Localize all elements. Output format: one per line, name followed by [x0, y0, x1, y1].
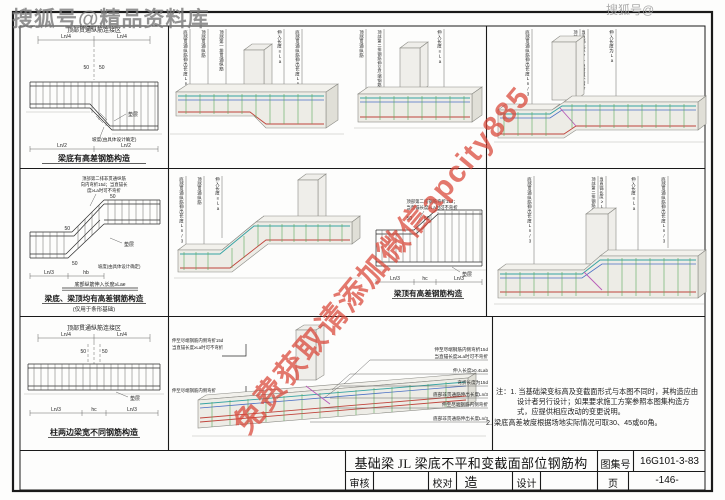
p2-cushion-leader: [110, 238, 122, 243]
notes-prefix: 注：: [496, 387, 510, 396]
v1-beam-front: [176, 92, 326, 128]
note-item-1: 注：1. 当基础梁变标高及变截面形式与本图不同时，其构造应由设计者另行设计；如果…: [496, 387, 702, 418]
p3-dim-ln3-right: Ln/3: [127, 407, 137, 413]
p2-dim-hb: hb: [83, 270, 89, 276]
p1-caption: 梁底有高差钢筋构造: [57, 153, 130, 163]
v5-beam-top-left: [498, 264, 592, 270]
v3-label-4: 伸入长度为La: [609, 29, 615, 64]
p3-dim-ln4-right: Ln/4: [117, 332, 127, 338]
panel-3d-width-change: 伸至尽端钢筋内侧弯折15d 当直锚长度≥La时可不弯折 伸至尽端钢筋内侧弯折 伸…: [172, 325, 488, 436]
v2-column-front: [400, 48, 420, 92]
p4-note-leader: [417, 211, 424, 223]
v3-column-side: [576, 36, 584, 100]
v1-beam-top: [176, 84, 338, 92]
v1-label-4: 伸入长度≥La: [277, 29, 283, 64]
p1-cushion-lines: [26, 112, 162, 134]
v3-label-1: 底部贯通纵筋伸出长度Ln/3: [525, 29, 531, 97]
p2-slope-note: 坡度(由具体设计确定): [98, 263, 141, 270]
p2-caption: 梁底、梁顶均有高差钢筋构造: [44, 293, 144, 303]
p3-cushion-label: 垫层: [130, 395, 140, 402]
p2-cushion-label: 垫层: [124, 241, 134, 248]
design-label: 设计: [513, 475, 540, 490]
panel-3d-bottom-step-a: 底部贯通纵筋伸出长度Ln/3 顶部贯通纵筋 顶部第一排贯通纵筋 伸入长度≥La …: [170, 29, 344, 134]
p1-top-dim: [38, 36, 150, 44]
review-label: 审核: [346, 475, 373, 490]
p2-note-line3: 度≥La时可不弯折: [87, 187, 121, 194]
p1-slope-note: 坡度(由具体设计确定): [92, 136, 137, 143]
v4-label-3: 伸入长度≥La: [215, 176, 221, 211]
panel-3d-top-step: 底部贯通纵筋伸出长度Ln/3 顶部第二排钢筋伸至尽端钢筋内侧弯折15d 当直锚长…: [494, 176, 706, 304]
v6-callout-1b: 当直锚长度≥La时可不弯折: [434, 353, 488, 360]
v3-beam-top-right: [564, 96, 706, 102]
panel-2d-width-change: 顶部贯通纵筋连接区 Ln/4 Ln/4 50 50 垫层 Ln/3 hc Ln/…: [24, 324, 164, 438]
p1-dim-bottom-left: Ln/2: [57, 143, 67, 149]
v5-beam-side: [698, 250, 706, 298]
check-label: 校对: [429, 475, 456, 490]
p2-anchor-underline: [62, 288, 138, 290]
p1-slope-leader: [100, 127, 104, 137]
v6-column-front: [296, 330, 316, 380]
v3-column-front: [552, 42, 576, 100]
p4-dim-ln3-right: Ln/3: [454, 276, 464, 282]
p1-50-right: 50: [99, 65, 105, 71]
p2-stirrups: [36, 200, 157, 258]
panel-2d-beam-top-step: 顶部第二排钢筋弯折15d； 当直锚长度≥La时可不弯折 50 50 垫层 Ln/…: [372, 198, 486, 299]
v5-label-4: 伸入长度≥La: [631, 176, 637, 211]
p2-anchor-label: 底部纵筋伸入长度≥Lae: [74, 281, 125, 288]
v1-beam-side: [326, 84, 338, 128]
p1-slope-hatch: [96, 113, 107, 123]
v6-callout-1a: 伸至尽端钢筋内侧弯折15d: [434, 346, 488, 353]
v3-beam-side: [698, 96, 706, 130]
p2-bottom-dim: [30, 273, 104, 279]
v5-beam-top-right: [600, 250, 706, 256]
v6-detail1-label2: 当直锚长度≥La时可不弯折: [172, 344, 224, 351]
v5-label-1: 底部贯通纵筋伸出长度Ln/3: [527, 176, 533, 244]
v6-callout-6: 底部非贯通筋伸出长度Ln/3: [433, 415, 488, 422]
notes: 注：1. 当基础梁变标高及变截面形式与本图不同时，其构造应由设计者另行设计；如果…: [496, 387, 702, 428]
v6-callout-4: 底部非贯通筋伸出长度Ln/3: [433, 391, 488, 398]
p4-caption: 梁顶有高差钢筋构造: [393, 288, 463, 298]
p2-note-leader: [90, 194, 96, 206]
v4-beam-top-3: [256, 216, 360, 222]
v4-label-2: 顶部贯通纵筋: [197, 177, 203, 206]
p2-50-bottom: 50: [72, 261, 78, 267]
p1-bottom-dim: [30, 146, 158, 152]
p4-cushion-leader: [452, 267, 460, 272]
p2-beam-outline: [30, 200, 160, 258]
p1-cushion-label: 垫层: [128, 111, 138, 118]
atlas-no-value: 16G101-3-83: [634, 456, 705, 467]
v2-column-side: [420, 42, 428, 92]
panel-3d-bottom-step-b: 顶部贯通纵筋 顶部第二排钢筋伸至尽端钢筋内侧 伸入长度≥La: [354, 29, 484, 128]
atlas-sheet: 搜狐号@精品资料库 搜狐号@ 免费获取请添加微信apcity885 顶部贯通纵筋…: [0, 0, 725, 500]
p4-dim-ln3-left: Ln/3: [390, 276, 400, 282]
v6-column-side: [316, 325, 324, 380]
v6-callout-5: 伸至尽端钢筋内侧弯折: [442, 401, 488, 408]
v5-label-5: 底部贯通纵筋伸出长度Ln/3: [661, 176, 667, 244]
p4-stirrups: [382, 211, 480, 262]
p3-50-right: 50: [102, 349, 108, 355]
p4-note-line1: 顶部第二排钢筋弯折15d；: [406, 198, 457, 205]
v3-beam-top-left: [498, 104, 560, 110]
v1-label-3: 顶部第一排贯通纵筋: [219, 30, 225, 73]
v2-label-1: 顶部贯通纵筋: [359, 30, 365, 59]
page-number: -146-: [629, 475, 705, 486]
p2-50-mid: 50: [64, 226, 70, 232]
note-item-2: 2. 梁底高差坡度根据场地实际情况可取30、45或60角。: [496, 418, 702, 428]
v6-detail2-label: 伸至尽端钢筋内侧弯折: [172, 387, 217, 394]
p4-50-left: 50: [406, 216, 412, 222]
p3-dim-ln3-left: Ln/3: [51, 407, 61, 413]
p2-note-line2: 向内弯折15d；当直锚长: [81, 181, 128, 188]
v2-beam-top: [358, 87, 482, 94]
page-label: 页: [598, 475, 628, 490]
panel-2d-beam-bottom-step: 顶部贯通纵筋连接区 Ln/4 Ln/4 50 50 垫层 坡度(由具体设计确定)…: [26, 26, 162, 164]
p4-dim-hc: hc: [422, 276, 428, 282]
p2-50-top: 50: [110, 194, 116, 200]
p3-top-dim: [38, 334, 150, 342]
p1-dim-ln4-left: Ln/4: [61, 34, 71, 40]
panel-3d-bottom-step-c: 底部贯通纵筋伸出长度Ln/3 顶部第二排钢筋伸至尽端钢筋内侧弯折15d 当直锚长…: [494, 29, 706, 142]
p3-column-dash: [88, 342, 100, 364]
v6-detail1-label1: 伸至尽端钢筋内侧弯折15d: [172, 337, 224, 344]
panel-3d-staircase: 底部贯通纵筋伸出长度Ln/3 顶部贯通纵筋 伸入长度≥La: [174, 174, 362, 278]
p3-cushion-leader: [116, 392, 128, 397]
v6-callout-2: 伸入长度≥0.4Lab: [453, 367, 488, 374]
p2-note-line1: 顶部第二排非贯通纵筋: [82, 175, 127, 182]
v6-detail1-icon: [222, 344, 246, 356]
p1-dim-bottom-right: Ln/2: [121, 143, 131, 149]
panel-2d-both-steps: 顶部第二排非贯通纵筋 向内弯折15d；当直锚长 度≥La时可不弯折 50 50 …: [30, 175, 160, 313]
p2-dim-ln3: Ln/3: [44, 270, 54, 276]
watermark-top-right: 搜狐号@: [606, 1, 654, 18]
v2-label-3: 伸入长度≥La: [437, 29, 443, 64]
p3-50-left: 50: [80, 349, 86, 355]
atlas-no-label: 图集号: [598, 456, 633, 471]
v1-label-2: 顶部贯通纵筋: [201, 30, 207, 59]
p3-caption: 柱两边梁宽不同钢筋构造: [50, 427, 138, 437]
v6-callout-3: 弯折长度为15d: [457, 379, 488, 386]
p3-zone-label: 顶部贯通纵筋连接区: [67, 324, 121, 332]
v4-beam-top-1: [178, 244, 230, 250]
watermark-top-left: 搜狐号@精品资料库: [12, 3, 209, 33]
v4-label-1: 底部贯通纵筋伸出长度Ln/3: [179, 176, 185, 244]
p1-beam-outline: [30, 82, 158, 130]
p1-dim-ln4-right: Ln/4: [117, 34, 127, 40]
p1-stirrups: [36, 82, 155, 130]
sheet-title: 基础梁 JL 梁底不平和变截面部位钢筋构造: [348, 453, 594, 469]
p2-subcaption: (仅用于条形基础): [73, 305, 115, 313]
p3-dim-ln4-left: Ln/4: [61, 332, 71, 338]
p3-dim-hc: hc: [91, 407, 97, 413]
p1-50-left: 50: [83, 65, 89, 71]
